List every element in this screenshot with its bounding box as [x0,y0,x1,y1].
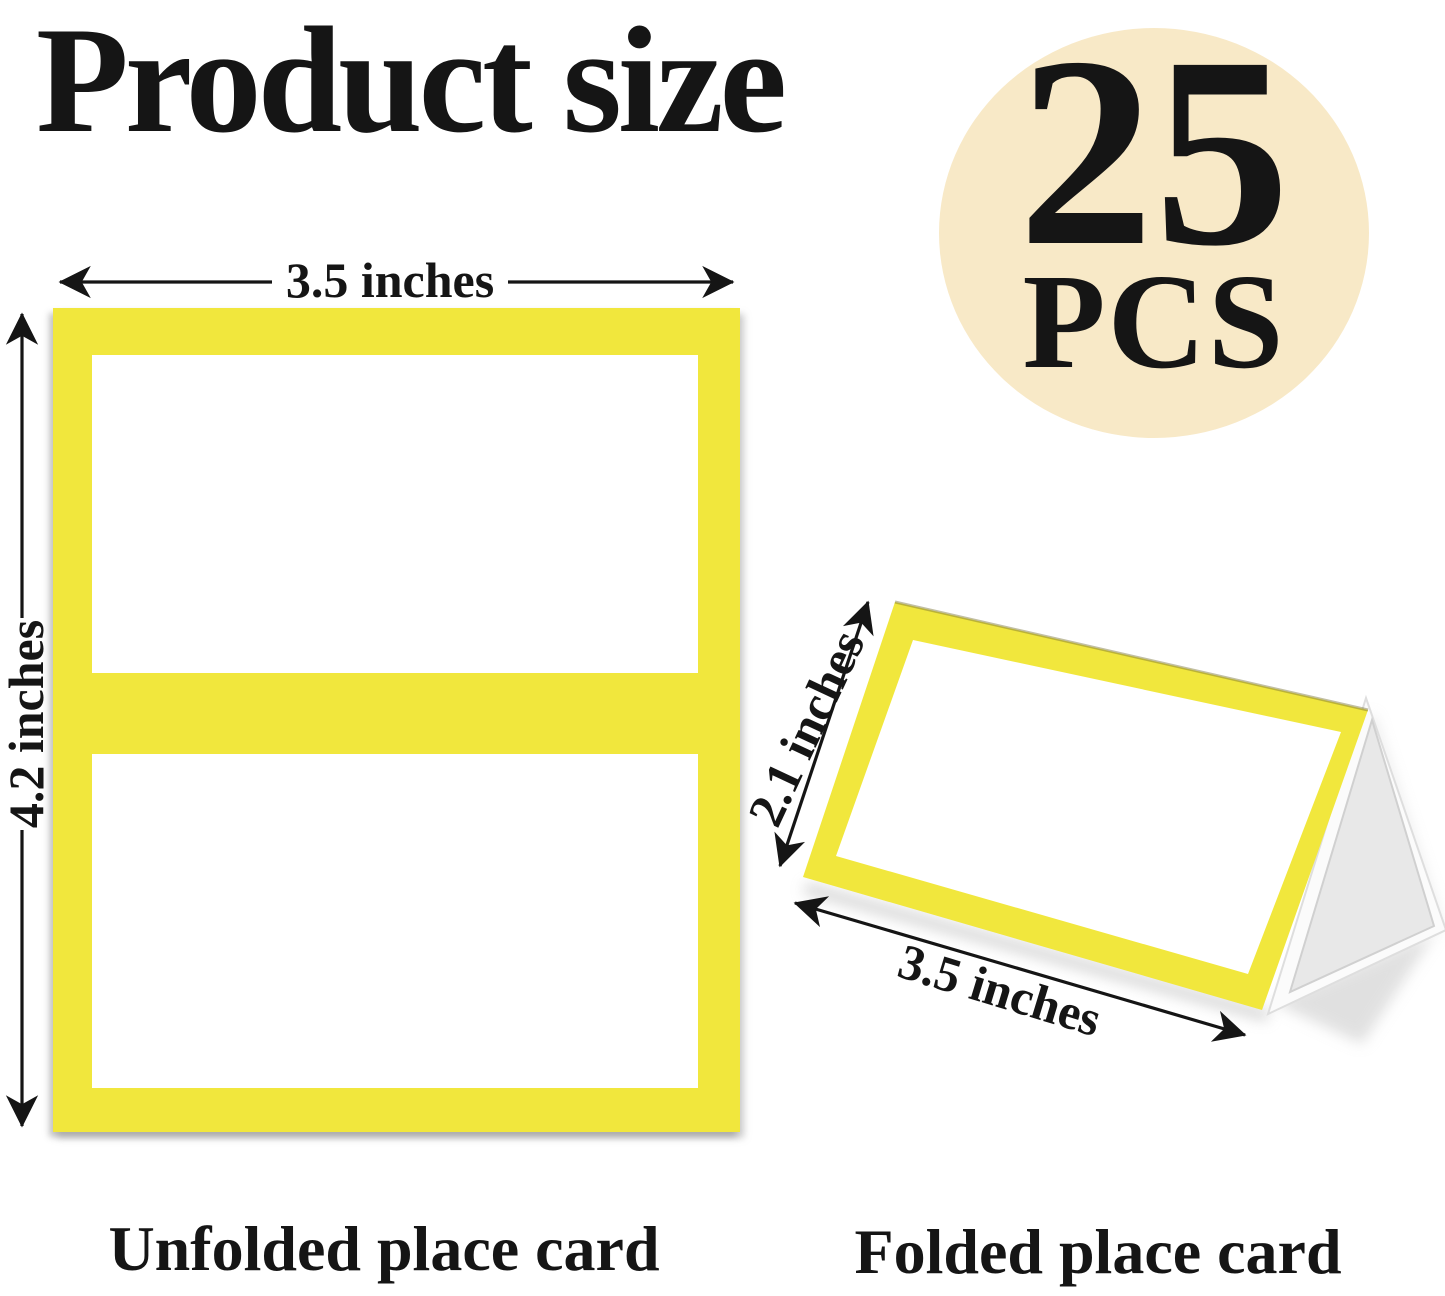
folded-card-back-panel [1290,720,1434,992]
unfolded-card-top-panel [92,355,698,673]
folded-height-label: 2.1 inches [739,623,872,833]
folded-card-cast-shadow [1272,932,1436,1044]
unfolded-card-bottom-panel [92,754,698,1088]
product-size-infographic: Product size 25 PCS [0,0,1445,1296]
unfolded-height-label: 4.2 inches [1,620,51,828]
unfolded-width-label: 3.5 inches [286,255,494,305]
folded-caption: Folded place card [854,1220,1341,1284]
folded-width-label: 3.5 inches [893,936,1107,1045]
folded-card-front-panel [803,602,1368,1010]
unfolded-card [53,308,740,1132]
page-title: Product size [36,4,783,156]
folded-card-fold-ridge [895,602,1368,710]
folded-card-back-shadow [1370,716,1440,930]
folded-card-front-white-area [836,640,1341,974]
quantity-badge: 25 PCS [939,28,1369,438]
folded-card-back-paper-edge [1268,698,1445,1014]
badge-count: 25 [1018,54,1290,250]
unfolded-caption: Unfolded place card [108,1217,659,1281]
badge-unit: PCS [1023,261,1286,383]
